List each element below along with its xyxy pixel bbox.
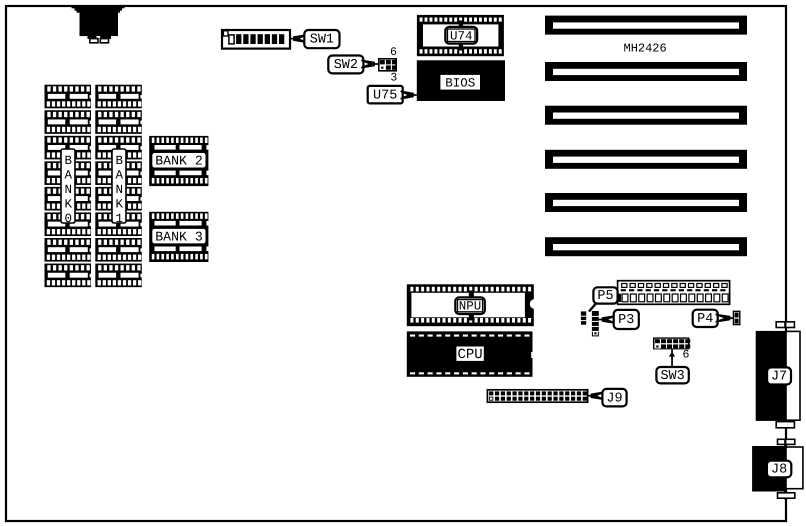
svg-text:N: N (64, 183, 72, 197)
svg-text:SW1: SW1 (310, 33, 334, 48)
svg-text:CPU: CPU (457, 347, 482, 363)
svg-text:K: K (64, 198, 72, 212)
svg-text:BIOS: BIOS (445, 76, 475, 90)
svg-text:U74: U74 (450, 30, 473, 44)
svg-text:6: 6 (390, 46, 397, 59)
svg-text:J8: J8 (771, 463, 787, 478)
svg-text:B: B (115, 154, 123, 168)
svg-text:B: B (64, 154, 72, 168)
svg-text:3: 3 (390, 72, 397, 85)
svg-text:K: K (115, 198, 123, 212)
svg-text:P4: P4 (697, 312, 713, 327)
svg-text:BANK 2: BANK 2 (155, 154, 202, 169)
svg-text:P3: P3 (618, 313, 634, 328)
svg-text:A: A (64, 169, 72, 183)
svg-text:MH2426: MH2426 (624, 42, 667, 56)
svg-text:BANK 3: BANK 3 (155, 229, 203, 244)
svg-text:N: N (115, 183, 123, 197)
svg-text:SW2: SW2 (334, 58, 358, 73)
svg-text:P5: P5 (597, 289, 613, 304)
svg-text:0: 0 (64, 212, 72, 226)
svg-text:1: 1 (115, 212, 123, 226)
svg-text:U75: U75 (373, 88, 397, 103)
svg-text:J9: J9 (606, 391, 622, 406)
svg-text:A: A (115, 169, 123, 183)
svg-text:J7: J7 (771, 370, 787, 385)
svg-text:SW3: SW3 (660, 369, 684, 384)
svg-text:NPU: NPU (459, 300, 482, 314)
svg-text:6: 6 (683, 349, 690, 362)
